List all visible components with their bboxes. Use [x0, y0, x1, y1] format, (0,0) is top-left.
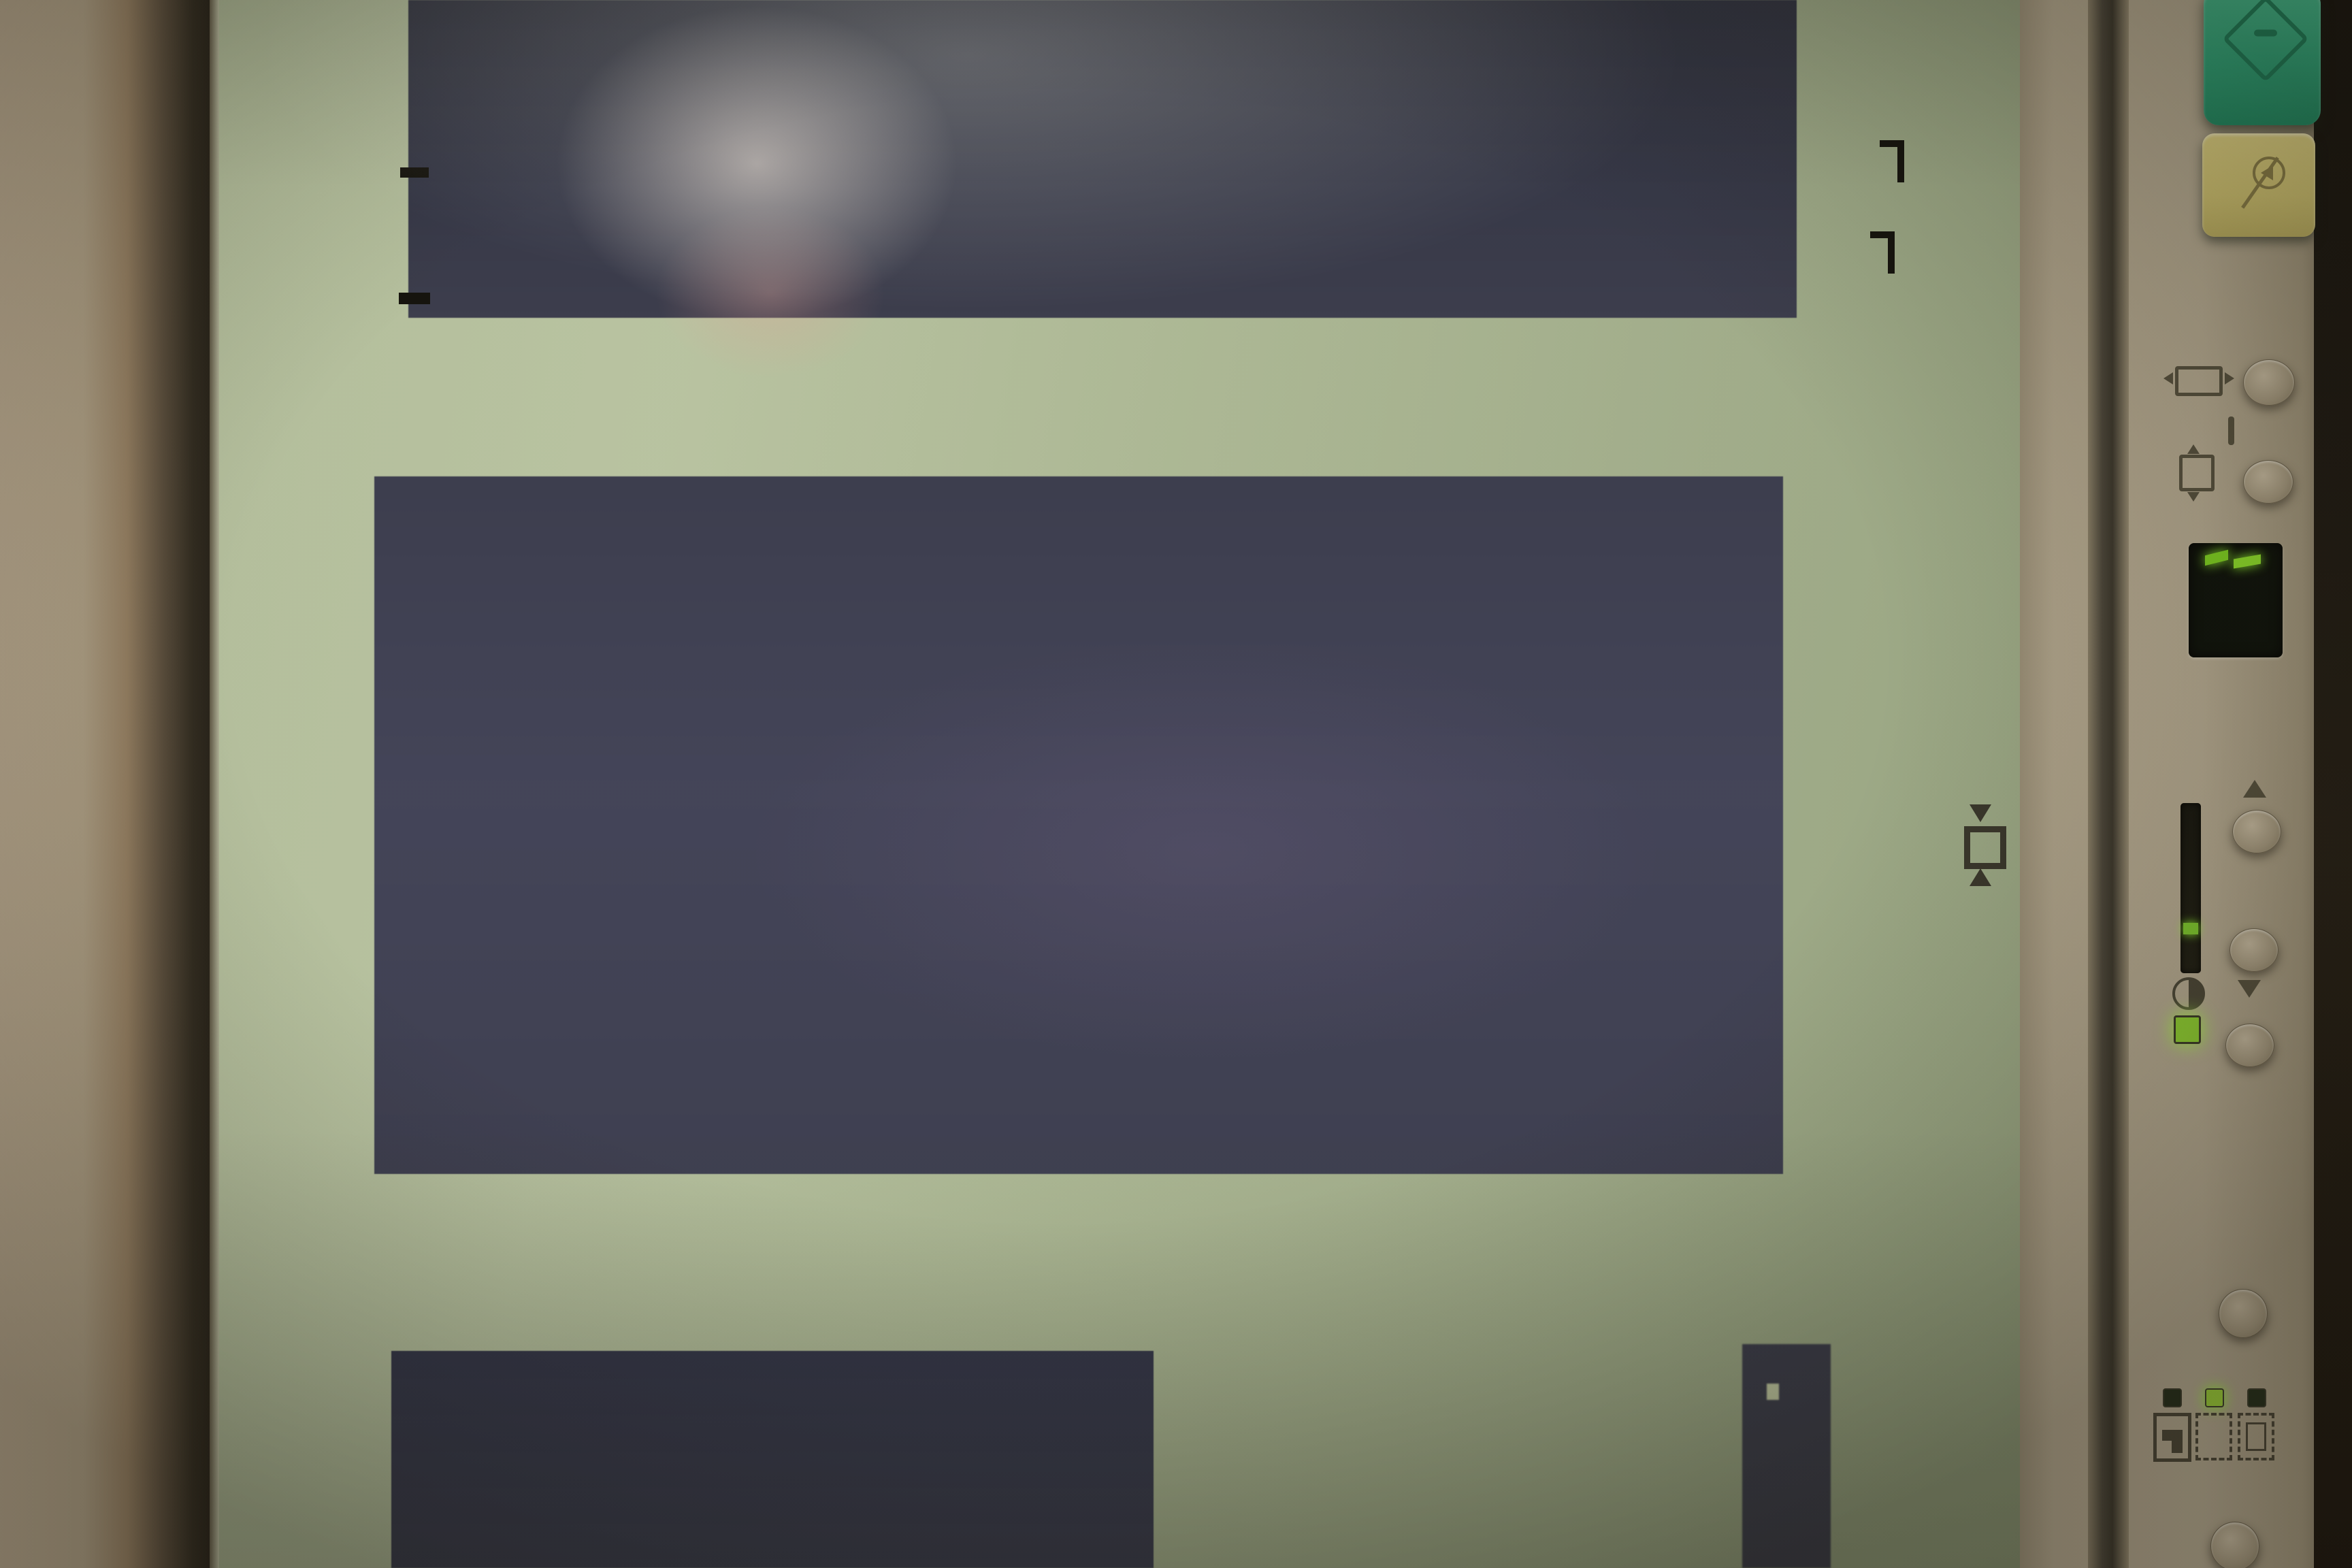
height-adjust-icon: [2179, 455, 2215, 491]
microfilm-scanner-photo: [0, 0, 2352, 1568]
display-segment: [2234, 554, 2261, 568]
contrast-icon: [2172, 977, 2205, 1010]
fragment-glyph: [1767, 1384, 1779, 1400]
zoom-out-knob[interactable]: [2243, 460, 2293, 504]
density-slider-slot[interactable]: [2180, 803, 2201, 973]
ae-led: [2174, 1015, 2201, 1044]
inner-mask-icon: [2238, 1413, 2274, 1460]
film-center-icon: [1963, 804, 1998, 887]
display-segment: [2205, 550, 2228, 566]
auto-mask-icon: [2153, 1413, 2191, 1462]
diamond-bar-icon: [2222, 0, 2308, 82]
lgl-bracket: [1870, 231, 1895, 238]
background-right: [2314, 0, 2352, 1568]
density-up-button[interactable]: [2232, 810, 2281, 853]
zoom-minus-bar: [2228, 416, 2234, 445]
film-edge-tick: [400, 167, 429, 178]
machine-left-frame: [0, 0, 219, 1568]
mask-led-3: [2247, 1388, 2266, 1407]
decrease-triangle-icon: [2238, 980, 2261, 998]
density-indicator: [2183, 923, 2198, 934]
frame-edge-highlight: [210, 0, 219, 1568]
width-adjust-icon: [2175, 366, 2223, 396]
mask-led-1: [2163, 1388, 2182, 1407]
film-edge-tick: [399, 293, 430, 304]
ltr-bracket: [1880, 140, 1904, 147]
document-middle-content: [374, 476, 1783, 1174]
document-top: [408, 0, 1797, 318]
ae-button[interactable]: [2225, 1024, 2274, 1067]
mask-mode-down-button[interactable]: [2210, 1522, 2259, 1568]
increase-triangle-icon: [2243, 780, 2266, 798]
density-down-button[interactable]: [2229, 928, 2278, 972]
document-middle: [374, 476, 1783, 1174]
document-top-content: [408, 0, 1797, 318]
document-bottom: [391, 1351, 1154, 1568]
film-frame-fragment: [1742, 1344, 1831, 1568]
zoom-in-knob[interactable]: [2243, 359, 2295, 406]
mask-mode-up-button[interactable]: [2219, 1289, 2268, 1338]
panel-groove: [2088, 0, 2129, 1568]
exposure-display: [2189, 543, 2283, 657]
start-button[interactable]: [2204, 0, 2321, 125]
frame-mask-icon: [2195, 1413, 2232, 1460]
mask-led-2: [2205, 1388, 2224, 1407]
clear-button[interactable]: [2202, 133, 2315, 237]
scanner-screen: [219, 0, 2020, 1568]
document-bottom-content: [391, 1351, 1154, 1568]
